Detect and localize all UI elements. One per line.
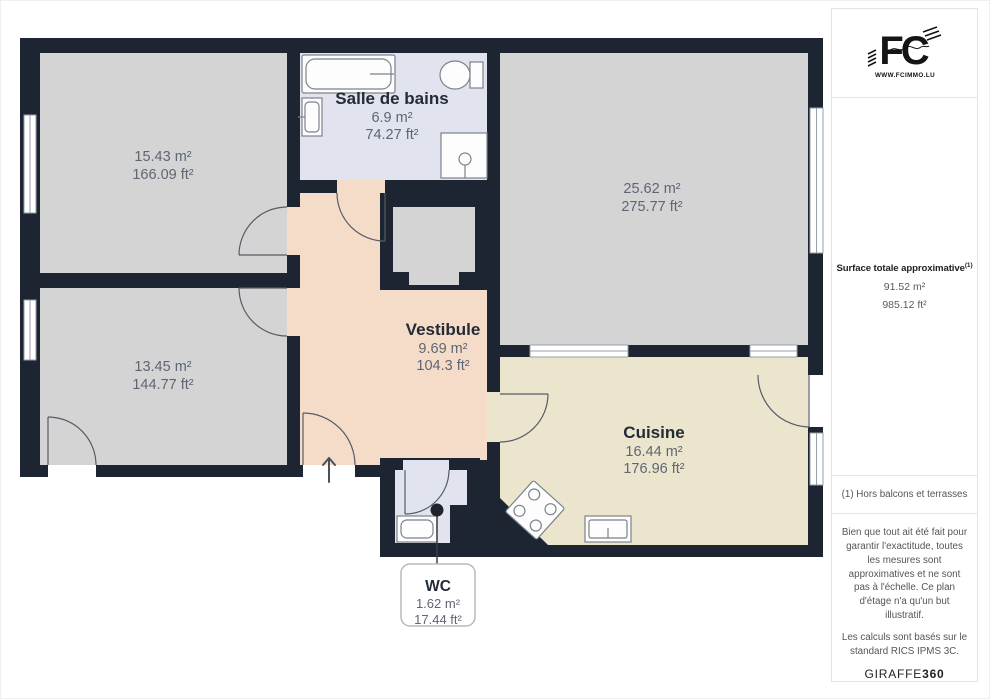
total-area-section: Surface totale approximative(1) 91.52 m²… (832, 98, 977, 476)
room-name: Cuisine (623, 423, 684, 442)
total-area-ft2: 985.12 ft² (882, 299, 926, 311)
window (810, 108, 823, 253)
room-label-cuisine: Cuisine 16.44 m² 176.96 ft² (623, 423, 685, 477)
room-area-ft2: 166.09 ft² (132, 167, 193, 183)
room-name: WC (425, 578, 451, 595)
footnote-text: (1) Hors balcons et terrasses (842, 489, 968, 500)
kitchen-sink (585, 516, 631, 542)
total-area-m2: 91.52 m² (884, 281, 925, 293)
room-area-ft2: 144.77 ft² (132, 377, 193, 393)
giraffe360-brand: GIRAFFE360 (841, 667, 968, 681)
footnote-section: (1) Hors balcons et terrasses (832, 476, 977, 514)
logo-monogram: FC (879, 29, 928, 73)
room-name: Vestibule (406, 320, 481, 339)
room-area-ft2: 275.77 ft² (621, 199, 682, 215)
toilet (440, 61, 483, 89)
logo-website: WWW.FCIMMO.LU (874, 72, 934, 79)
legal-section: Bien que tout ait été fait pour garantir… (832, 514, 977, 681)
room-area-m2: 15.43 m² (134, 149, 191, 165)
wc-anchor-dot (431, 504, 444, 517)
vestibule-floor-right (380, 290, 487, 460)
total-area-label-text: Surface totale approximative (836, 264, 964, 275)
bathtub (302, 55, 395, 93)
room-area-m2: 13.45 m² (134, 359, 191, 375)
floor-plan: 15.43 m² 166.09 ft² Salle de bains 6.9 m… (0, 0, 830, 699)
room-area-m2: 6.9 m² (371, 110, 412, 126)
wc-wall-notch (450, 505, 480, 557)
room-name: Salle de bains (335, 89, 448, 108)
interior-window (530, 345, 628, 357)
room-area-ft2: 176.96 ft² (623, 461, 684, 477)
window (810, 433, 823, 485)
disclaimer-text: Bien que tout ait été fait pour garantir… (841, 526, 968, 623)
room-area-m2: 16.44 m² (625, 444, 682, 460)
standard-text: Les calculs sont basés sur le standard R… (841, 631, 968, 659)
room-area-m2: 9.69 m² (418, 341, 467, 357)
room-area-m2: 25.62 m² (623, 181, 680, 197)
window (24, 115, 36, 213)
brand-suffix: 360 (922, 667, 944, 681)
total-area-label: Surface totale approximative(1) (836, 262, 972, 274)
footnote-marker: (1) (965, 262, 973, 269)
wc-door-gap (403, 460, 449, 470)
window (24, 300, 36, 360)
wc-sink (397, 516, 437, 542)
interior-window (750, 345, 797, 357)
fc-immo-logo: FC WWW.FCIMMO.LU (863, 24, 947, 82)
info-sidebar: FC WWW.FCIMMO.LU Surface totale approxim… (831, 8, 978, 682)
shower (441, 133, 487, 178)
floor-plan-page: 15.43 m² 166.09 ft² Salle de bains 6.9 m… (0, 0, 990, 699)
agency-logo-section: FC WWW.FCIMMO.LU (832, 9, 977, 98)
brand-name: GIRAFFE (864, 667, 922, 681)
room-area-ft2: 17.44 ft² (414, 612, 462, 627)
vestibule-floor-left (300, 193, 387, 465)
room-area-ft2: 104.3 ft² (416, 358, 469, 374)
bathroom-sink (298, 98, 322, 136)
room-area-ft2: 74.27 ft² (365, 127, 418, 143)
room-area-m2: 1.62 m² (416, 596, 461, 611)
